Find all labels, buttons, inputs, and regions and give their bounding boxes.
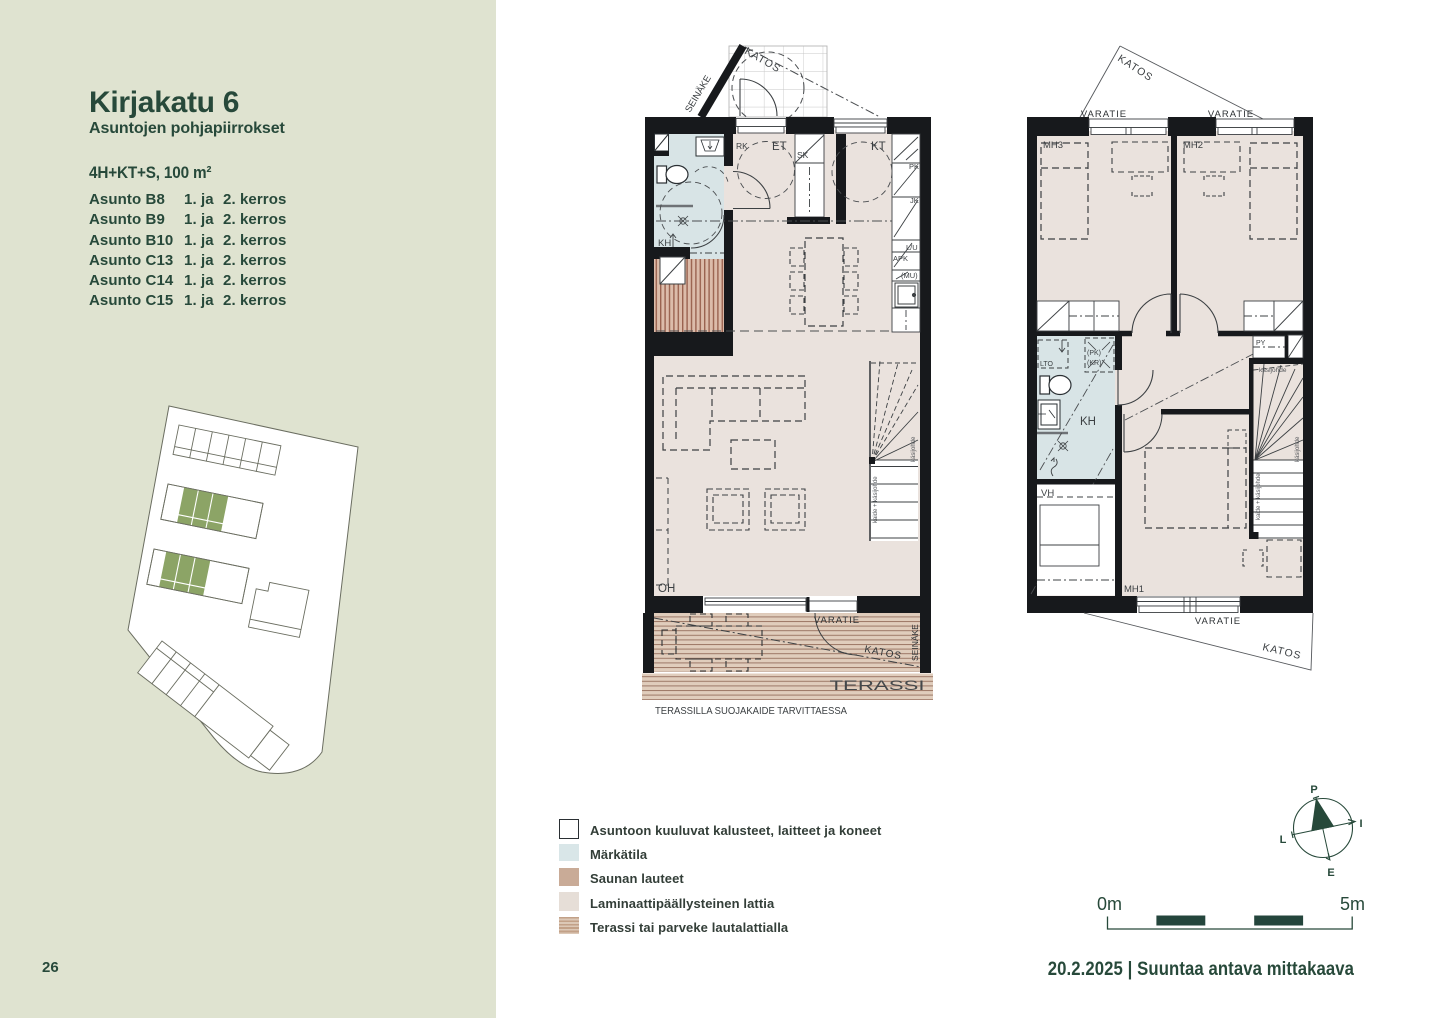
svg-text:VARATIE: VARATIE <box>1195 616 1241 627</box>
svg-text:P: P <box>1310 784 1317 796</box>
svg-text:APK: APK <box>893 254 908 263</box>
svg-text:L: L <box>1280 834 1287 846</box>
svg-text:MH1: MH1 <box>1124 584 1144 595</box>
svg-text:TERASSI: TERASSI <box>830 677 925 693</box>
svg-text:OH: OH <box>658 583 675 595</box>
svg-text:KH: KH <box>658 238 671 249</box>
svg-text:KATOS: KATOS <box>1115 52 1155 84</box>
svg-text:ET: ET <box>772 141 787 153</box>
svg-text:LTO: LTO <box>1040 361 1054 368</box>
svg-text:käsijohde: käsijohde <box>1259 367 1287 374</box>
svg-text:(MU): (MU) <box>901 271 918 280</box>
svg-text:KH: KH <box>1080 416 1096 428</box>
svg-text:KT: KT <box>871 141 886 153</box>
svg-text:TERASSILLA SUOJAKAIDE TARVITTA: TERASSILLA SUOJAKAIDE TARVITTAESSA <box>655 705 847 717</box>
svg-text:RK: RK <box>736 141 748 151</box>
svg-text:PY: PY <box>1256 340 1266 347</box>
svg-text:I: I <box>1359 818 1362 830</box>
svg-text:E: E <box>1327 867 1334 879</box>
svg-text:kaide + käsijohde: kaide + käsijohde <box>873 476 879 523</box>
svg-text:(KR): (KR) <box>1087 360 1101 367</box>
svg-text:kaide + käsijohde: kaide + käsijohde <box>1256 473 1262 520</box>
svg-text:VH: VH <box>1041 488 1054 499</box>
svg-text:käsijohde: käsijohde <box>1295 436 1301 462</box>
svg-text:JK: JK <box>910 196 919 205</box>
svg-text:L/U: L/U <box>906 243 918 252</box>
svg-text:VARATIE: VARATIE <box>814 615 860 626</box>
svg-text:SEINÄKE: SEINÄKE <box>910 624 920 661</box>
svg-text:käsijohde: käsijohde <box>911 436 917 462</box>
svg-text:SK: SK <box>797 150 809 160</box>
svg-text:PK: PK <box>909 162 919 171</box>
svg-text:MH3: MH3 <box>1043 140 1063 151</box>
svg-text:(PK): (PK) <box>1087 350 1101 357</box>
